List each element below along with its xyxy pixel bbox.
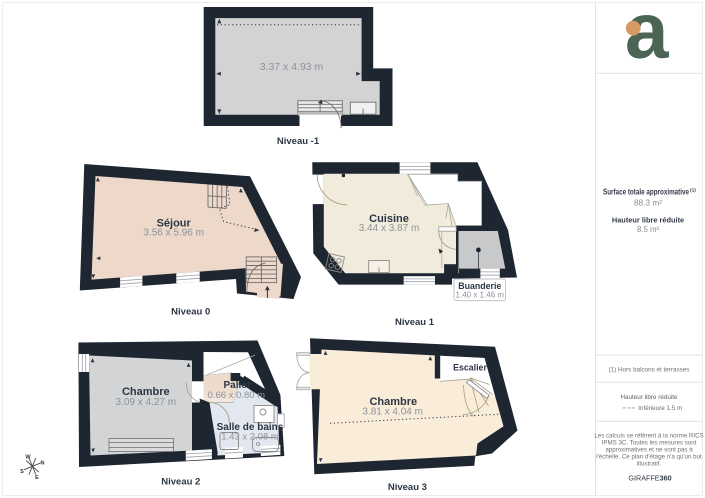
svg-text:3.09 x 4.27 m: 3.09 x 4.27 m [116,397,177,408]
svg-text:88.3 m²: 88.3 m² [634,198,662,208]
svg-text:E: E [35,475,39,481]
svg-text:GIRAFFE360: GIRAFFE360 [628,473,671,482]
svg-text:3.81 x 4.04 m: 3.81 x 4.04 m [362,406,423,417]
svg-text:approximatives et ne sont pas: approximatives et ne sont pas à [605,447,693,454]
svg-text:Hauteur libre réduite: Hauteur libre réduite [612,215,684,224]
svg-text:Niveau 1: Niveau 1 [395,317,435,328]
svg-text:1.40 x 1.46 m: 1.40 x 1.46 m [456,291,505,300]
svg-text:Hauteur libre réduite: Hauteur libre réduite [620,394,678,401]
svg-text:Niveau -1: Niveau -1 [277,136,320,147]
svg-text:1.43 x 2.08 m: 1.43 x 2.08 m [221,432,279,443]
svg-text:N: N [41,461,45,467]
svg-text:3.56 x 5.96 m: 3.56 x 5.96 m [143,227,204,238]
svg-text:0.66 x 0.80 m: 0.66 x 0.80 m [208,390,266,401]
svg-text:(1): (1) [690,188,696,194]
svg-text:Surface totale approximative: Surface totale approximative [603,188,689,197]
svg-text:8.5 m²: 8.5 m² [637,225,659,234]
svg-text:IPMS 3C. Toutes les mesures so: IPMS 3C. Toutes les mesures sont [602,440,697,447]
svg-text:l'échelle. Ce plan d'étage n'a: l'échelle. Ce plan d'étage n'a qu'un but [596,454,702,461]
svg-text:Niveau 2: Niveau 2 [161,476,200,487]
svg-text:Niveau 3: Niveau 3 [388,482,427,493]
svg-text:Escalier: Escalier [453,363,487,373]
svg-text:Niveau 0: Niveau 0 [171,307,210,318]
svg-text:W: W [25,455,31,461]
svg-text:3.37 x 4.93 m: 3.37 x 4.93 m [260,61,324,73]
svg-text:illustratif.: illustratif. [637,461,662,468]
svg-text:a: a [625,0,670,75]
svg-text:Buanderie: Buanderie [458,281,501,291]
svg-text:3.44 x 3.87 m: 3.44 x 3.87 m [359,223,420,234]
svg-text:S: S [20,469,24,475]
svg-text:Inférieure 1.5 m: Inférieure 1.5 m [638,405,682,412]
svg-text:Les calculs se réfèrent à la n: Les calculs se réfèrent à la norme RICS [594,433,703,440]
svg-text:(1) Hors balcons et terrasses: (1) Hors balcons et terrasses [609,367,690,374]
